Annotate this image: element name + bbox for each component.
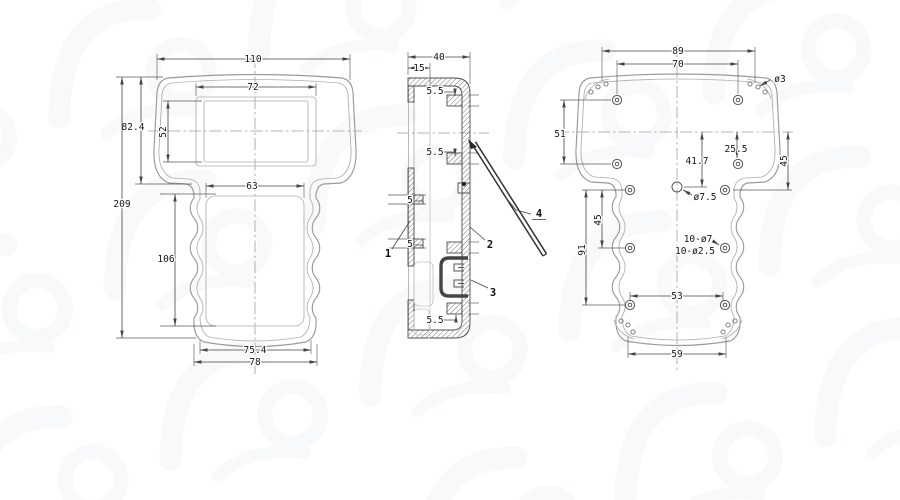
dim-text-center-offset: 25.5 [725, 144, 748, 155]
technical-drawing-sheet: 110 82.4 209 72 [0, 0, 900, 500]
dim-text-left-span-large: 91 [577, 244, 588, 256]
dim-text-right-span: 45 [779, 155, 790, 166]
dim-text-hole-drop: 41.7 [686, 156, 709, 167]
dim-text-body-top-width: 63 [246, 181, 257, 192]
callout-text-front-shell: 1 [385, 248, 391, 260]
dim-text-rib-lower: 5 [407, 239, 413, 250]
dim-text-head-height: 82.4 [122, 122, 145, 133]
note-text-center-hole-dia: ø7.5 [694, 192, 717, 203]
callout-text-rear-shell: 2 [487, 239, 493, 251]
dim-text-lower-boss-span: 53 [671, 291, 682, 302]
dim-text-body-height: 106 [157, 254, 174, 265]
dim-text-bottom-span: 59 [671, 349, 683, 360]
note-text-boss-outer: 10-ø7 [684, 234, 713, 245]
dim-text-overall-height: 209 [113, 199, 130, 210]
note-text-corner-hole-dia: ø3 [774, 74, 785, 85]
dim-text-left-span-small: 45 [593, 214, 604, 225]
enclosure-drawing: 110 82.4 209 72 [0, 0, 900, 500]
dim-text-front-depth: 15 [413, 63, 424, 74]
dim-text-boss-bottom: 5.5 [426, 315, 443, 326]
dim-text-boss-top: 5.5 [426, 86, 443, 97]
dim-text-overall-width: 110 [244, 54, 261, 65]
dim-text-rib-upper: 5 [407, 195, 413, 206]
dim-text-corner-hole-span: 89 [672, 46, 684, 57]
dim-text-bottom-inner-width: 75.4 [244, 345, 267, 356]
dim-text-top-boss-span: 70 [672, 59, 684, 70]
dim-text-upper-boss-pitch: 51 [554, 129, 566, 140]
dim-text-bottom-outer-width: 78 [249, 357, 261, 368]
dim-text-boss-mid: 5.5 [426, 147, 443, 158]
note-text-boss-inner: 10-ø2.5 [675, 246, 715, 257]
dim-text-screen-width: 72 [247, 82, 258, 93]
callout-text-stand: 4 [536, 208, 542, 220]
dim-text-depth: 40 [433, 52, 445, 63]
dim-text-screen-height: 52 [158, 126, 169, 137]
callout-text-battery: 3 [490, 287, 496, 299]
